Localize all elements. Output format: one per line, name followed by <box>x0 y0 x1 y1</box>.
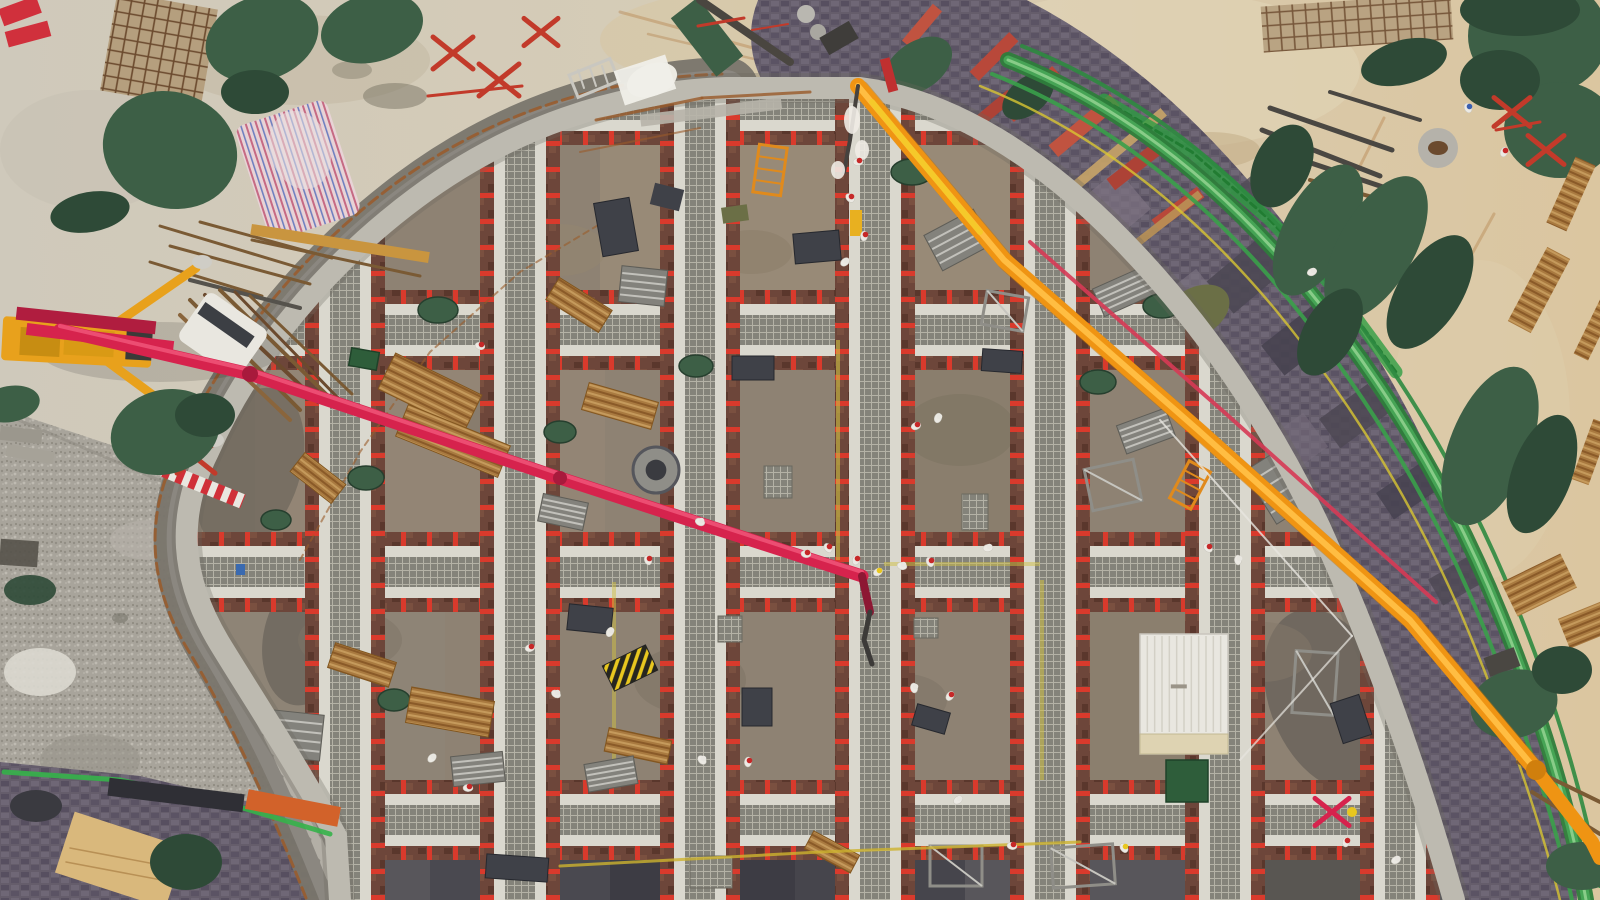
worker-helmet <box>949 692 955 698</box>
ell <box>112 613 128 623</box>
worker-helmet <box>609 628 615 634</box>
white-site-shed <box>1140 634 1228 754</box>
rect <box>236 564 245 575</box>
green-bin <box>349 348 380 371</box>
ell <box>10 790 62 822</box>
construction-site-aerial-photo <box>0 0 1600 900</box>
spool-hub <box>646 460 667 481</box>
worker-helmet <box>1467 104 1473 110</box>
ell <box>831 161 845 179</box>
worker-helmet <box>747 758 753 764</box>
worker-helmet <box>929 558 935 564</box>
tarp <box>150 834 222 890</box>
ell <box>844 106 860 134</box>
ell <box>332 61 372 79</box>
worker-helmet <box>901 562 907 568</box>
tarp <box>175 393 235 437</box>
green-bin <box>1166 760 1208 802</box>
worker-helmet <box>937 414 943 420</box>
yellow-prop <box>850 210 862 236</box>
rebar-cage <box>914 618 938 638</box>
worker-helmet <box>529 644 535 650</box>
worker-helmet <box>1311 268 1317 274</box>
worker-helmet <box>467 784 473 790</box>
worker-helmet <box>431 754 437 760</box>
worker-helmet <box>699 518 705 524</box>
worker-helmet <box>555 690 561 696</box>
worker-helmet <box>827 544 833 550</box>
shed-base <box>1140 734 1228 754</box>
wall-rail <box>535 60 546 900</box>
worker-helmet <box>1011 842 1017 848</box>
worker-helmet <box>805 550 811 556</box>
wall-rail <box>849 60 860 900</box>
aerial-photo-canvas <box>0 0 1600 900</box>
ell <box>553 471 567 485</box>
wall-rebar-mesh <box>685 60 715 900</box>
worker-helmet <box>1345 838 1351 844</box>
steel-plate <box>485 854 549 882</box>
worker-helmet <box>915 422 921 428</box>
wall-rebar-mesh <box>860 60 890 900</box>
tarp <box>544 421 576 443</box>
ell <box>1347 807 1357 817</box>
worker-helmet <box>479 342 485 348</box>
worker-helmet <box>844 258 850 264</box>
worker-helmet <box>1207 544 1213 550</box>
tarp <box>221 70 289 114</box>
scaffold-stack <box>451 751 506 786</box>
steel-plate <box>793 230 841 264</box>
wall-rebar-mesh <box>505 60 535 900</box>
worker-helmet <box>849 194 855 200</box>
worker-helmet <box>701 756 707 762</box>
steel-plate <box>567 604 613 634</box>
rebar-cage <box>690 856 732 888</box>
worker-helmet <box>855 556 861 562</box>
ell <box>855 140 869 160</box>
rect <box>0 539 39 568</box>
tarp <box>348 466 384 490</box>
worker-helmet <box>1237 556 1243 562</box>
worker-helmet <box>957 796 963 802</box>
ell <box>363 83 427 109</box>
worker-helmet <box>1503 148 1509 154</box>
shed-mark <box>1171 684 1187 688</box>
tarp <box>679 355 713 377</box>
worker-helmet <box>647 556 653 562</box>
scaffold-stack <box>618 266 668 307</box>
tarp <box>1080 370 1116 394</box>
rebar-cage <box>962 494 988 530</box>
steel-plate <box>732 356 774 380</box>
ell <box>192 255 212 269</box>
wall-rail <box>1024 60 1035 900</box>
ell <box>1428 141 1448 155</box>
wall-rail <box>890 60 901 900</box>
tarp <box>418 297 458 323</box>
ell <box>242 366 258 382</box>
rect <box>884 562 1040 566</box>
rebar-cage <box>718 616 742 642</box>
ell <box>904 394 1016 466</box>
ell <box>1526 760 1546 780</box>
worker-helmet <box>987 544 993 550</box>
steel-plate <box>981 349 1022 374</box>
worker-helmet <box>1123 844 1129 850</box>
steel-plate <box>742 688 772 726</box>
stack-base <box>618 266 668 307</box>
wall-rail <box>715 60 726 900</box>
ell <box>4 648 76 696</box>
worker-helmet <box>863 232 869 238</box>
worker-helmet <box>877 568 883 574</box>
rect <box>1040 580 1044 780</box>
ell <box>797 5 815 23</box>
tarp <box>1532 646 1592 694</box>
ell <box>4 575 56 605</box>
tarp <box>378 689 410 711</box>
worker-helmet <box>857 158 863 164</box>
tarp <box>261 510 291 530</box>
rebar-cage <box>764 466 792 498</box>
worker-helmet <box>913 684 919 690</box>
rect <box>836 340 840 560</box>
worker-helmet <box>1395 856 1401 862</box>
